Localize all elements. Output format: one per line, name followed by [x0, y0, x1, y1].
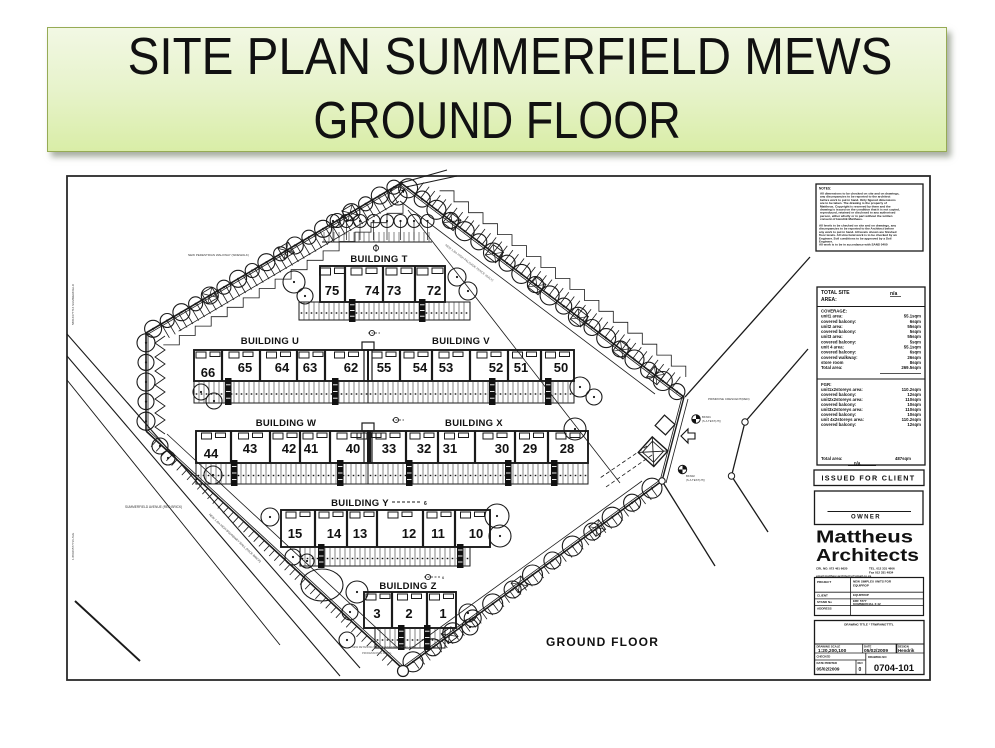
svg-text:n/a: n/a [890, 291, 897, 297]
svg-text:44: 44 [204, 446, 219, 461]
svg-text:CHECKED: CHECKED [817, 655, 831, 659]
svg-text:28: 28 [560, 441, 574, 456]
svg-text:1.88466577716 AVE: 1.88466577716 AVE [71, 533, 75, 560]
svg-text:KOMMERCIAL X 42: KOMMERCIAL X 42 [853, 602, 881, 606]
svg-text:STAND No: STAND No [817, 600, 832, 604]
svg-text:41: 41 [304, 441, 318, 456]
svg-text:GROUND FLOOR: GROUND FLOOR [546, 635, 659, 649]
svg-text:ISSUED FOR CLIENT: ISSUED FOR CLIENT [822, 474, 916, 483]
svg-text:DATE PRINTED: DATE PRINTED [817, 661, 837, 665]
svg-text:6: 6 [424, 501, 427, 507]
svg-text:33: 33 [382, 441, 396, 456]
svg-text:11: 11 [431, 526, 445, 541]
svg-text:CRL NO. 072 461 6620: CRL NO. 072 461 6620 [816, 567, 848, 571]
svg-text:72: 72 [427, 283, 441, 298]
svg-text:55: 55 [377, 360, 391, 375]
svg-text:58816677716 SUMMERFIELD: 58816677716 SUMMERFIELD [71, 283, 75, 325]
svg-text:2: 2 [405, 606, 412, 621]
svg-text:Hendrik: Hendrik [898, 648, 915, 653]
svg-text:50: 50 [554, 360, 568, 375]
svg-text:PROFESSIONAL DETAIL: PROFESSIONAL DETAIL [362, 651, 392, 655]
svg-text:0: 0 [859, 667, 862, 673]
svg-text:Architects: Architects [816, 545, 919, 565]
svg-text:NEW PEDESTRIAN WALKWAY (SIDEWA: NEW PEDESTRIAN WALKWAY (SIDEWALK) [188, 253, 249, 257]
svg-text:(S.A TEST(JT)): (S.A TEST(JT)) [702, 419, 721, 423]
svg-text:TOTAL SITE: TOTAL SITE [821, 290, 850, 296]
svg-text:OWNER: OWNER [851, 515, 881, 521]
svg-text:DRAWING SCALE: DRAWING SCALE [817, 645, 841, 649]
svg-text:EQUIPROP: EQUIPROP [853, 584, 869, 588]
svg-text:Total area:: Total area: [821, 365, 843, 370]
svg-text:NEW RETAINING WALL TO ENGINEER: NEW RETAINING WALL TO ENGINEER DETAIL (R… [352, 645, 414, 649]
svg-text:66: 66 [201, 365, 215, 380]
svg-text:40: 40 [346, 441, 360, 456]
svg-text:30: 30 [495, 441, 509, 456]
svg-text:AREA:: AREA: [821, 297, 837, 303]
svg-text:consent of Hendrik Mattheus.: consent of Hendrik Mattheus. [820, 217, 863, 221]
svg-text:51: 51 [514, 360, 528, 375]
svg-text:DRAWING TITLE * TRWRHNGTTTL: DRAWING TITLE * TRWRHNGTTTL [844, 623, 894, 627]
svg-text:0704-101: 0704-101 [874, 663, 915, 674]
svg-text:BUILDING Y: BUILDING Y [331, 498, 389, 509]
svg-text:15: 15 [288, 526, 302, 541]
svg-text:BUILDING Z: BUILDING Z [379, 581, 436, 592]
svg-text:43: 43 [243, 441, 257, 456]
svg-text:BUILDING X: BUILDING X [445, 418, 503, 429]
svg-text:(S.A TEST(JT)): (S.A TEST(JT)) [686, 478, 705, 482]
svg-text:SUMMERFIELD AVENUE (RED BRICK): SUMMERFIELD AVENUE (RED BRICK) [125, 505, 182, 509]
svg-text:73: 73 [387, 283, 401, 298]
svg-text:DATE: DATE [864, 645, 872, 649]
svg-text:54: 54 [413, 360, 428, 375]
svg-text:13: 13 [353, 526, 367, 541]
svg-text:52: 52 [489, 360, 503, 375]
svg-text:74: 74 [365, 283, 380, 298]
svg-text:BUILDING W: BUILDING W [256, 418, 317, 429]
svg-text:BUILDING T: BUILDING T [350, 254, 407, 265]
svg-text:DRAWING NO: DRAWING NO [868, 655, 887, 659]
svg-text:Mattheus: Mattheus [816, 527, 913, 547]
svg-text:12sqm: 12sqm [907, 422, 921, 427]
svg-text:EQUIPROP: EQUIPROP [853, 593, 869, 597]
svg-text:All work is to be in accordanc: All work is to be in accordance with SAN… [819, 243, 888, 247]
svg-text:NOTES:: NOTES: [819, 187, 831, 191]
svg-text:75: 75 [325, 283, 339, 298]
svg-text:PRIMROSE CRESCENT(RED): PRIMROSE CRESCENT(RED) [708, 397, 750, 401]
svg-text:487sqm: 487sqm [895, 456, 911, 461]
svg-text:29: 29 [523, 441, 537, 456]
svg-text:n/a: n/a [854, 461, 861, 466]
svg-text:BUILDING V: BUILDING V [432, 336, 490, 347]
svg-text:REV: REV [858, 661, 864, 665]
svg-text:63: 63 [303, 360, 317, 375]
svg-text:Total area:: Total area: [821, 456, 843, 461]
svg-text:BUILDING U: BUILDING U [241, 336, 299, 347]
svg-text:PROJECT: PROJECT [817, 580, 831, 584]
svg-text:62: 62 [344, 360, 358, 375]
svg-text:1: 1 [439, 606, 446, 621]
svg-text:64: 64 [275, 360, 290, 375]
svg-text:12: 12 [402, 526, 416, 541]
svg-text:53: 53 [439, 360, 453, 375]
svg-text:14: 14 [327, 526, 342, 541]
svg-text:42: 42 [282, 441, 296, 456]
svg-text:32: 32 [417, 441, 431, 456]
svg-text:65: 65 [238, 360, 252, 375]
svg-text:covered balcony:: covered balcony: [821, 422, 857, 427]
svg-text:05/02/2009: 05/02/2009 [817, 667, 840, 672]
svg-text:Fax 012 331 4834: Fax 012 331 4834 [869, 570, 894, 574]
svg-text:31: 31 [443, 441, 457, 456]
svg-text:10: 10 [469, 526, 483, 541]
svg-text:ADDRESS: ADDRESS [817, 607, 832, 611]
svg-text:CLIENT: CLIENT [817, 594, 828, 598]
svg-text:269.5sqm: 269.5sqm [901, 365, 921, 370]
svg-text:3: 3 [373, 606, 380, 621]
